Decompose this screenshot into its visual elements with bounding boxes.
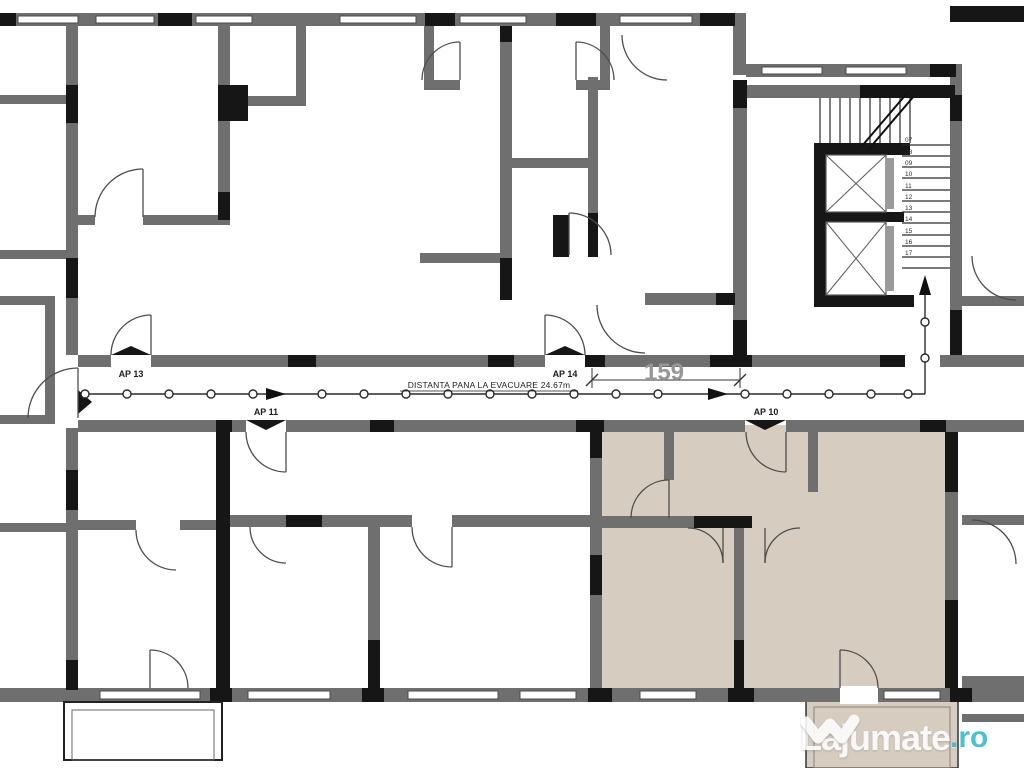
- label-ap-11: AP 11: [254, 407, 278, 417]
- stair-step-numbers: 07 08 09 10 11 12 13 14 15 16 17: [905, 137, 913, 257]
- svg-text:10: 10: [905, 171, 913, 178]
- label-ap-14: AP 14: [553, 369, 578, 379]
- svg-text:15: 15: [905, 228, 913, 235]
- floor-plan-image: 07 08 09 10 11 12 13 14 15 16 17: [0, 0, 1024, 768]
- svg-text:07: 07: [905, 137, 913, 144]
- svg-text:13: 13: [905, 205, 913, 212]
- label-ap-10: AP 10: [754, 407, 779, 417]
- svg-text:09: 09: [905, 160, 913, 167]
- floor-plan: 07 08 09 10 11 12 13 14 15 16 17: [0, 0, 1024, 768]
- svg-text:11: 11: [905, 183, 912, 190]
- svg-text:16: 16: [905, 239, 913, 246]
- balcony: [64, 702, 222, 760]
- highlighted-apartment-region: [596, 425, 958, 768]
- svg-text:08: 08: [905, 149, 913, 156]
- label-ap-13: AP 13: [119, 369, 144, 379]
- elevators: [826, 155, 894, 295]
- svg-text:14: 14: [905, 216, 913, 223]
- staircase: 07 08 09 10 11 12 13 14 15 16 17: [820, 92, 950, 295]
- svg-text:12: 12: [905, 194, 913, 201]
- evacuation-distance-label: DISTANTA PANA LA EVACUARE 24.67m: [408, 380, 571, 390]
- svg-text:17: 17: [905, 250, 913, 257]
- dimension-value: 159: [644, 359, 684, 386]
